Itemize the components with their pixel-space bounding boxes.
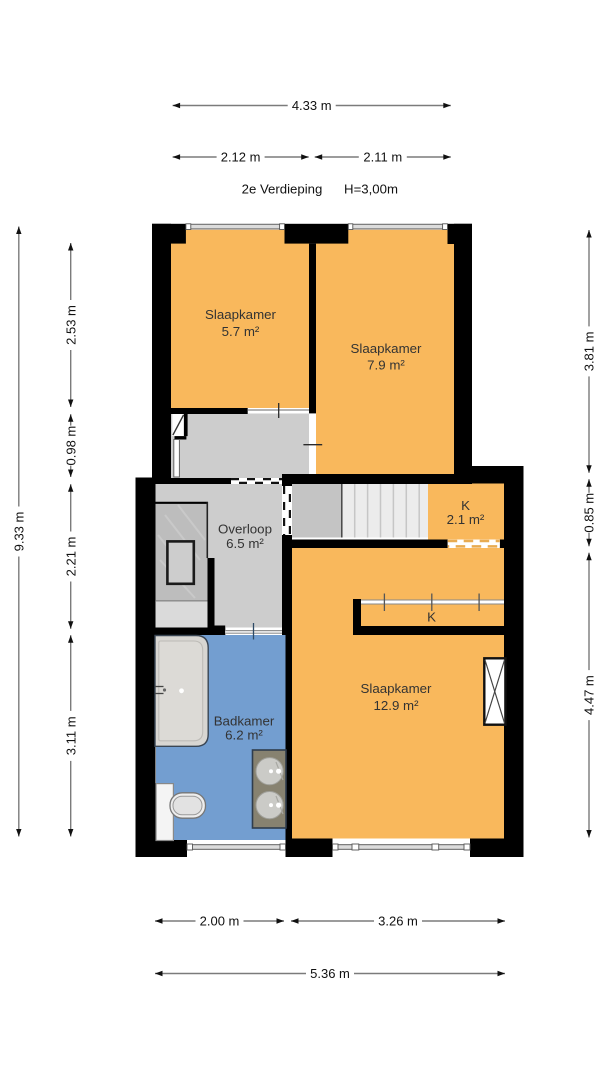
svg-text:5.36 m: 5.36 m [310, 966, 350, 981]
svg-text:Slaapkamer: Slaapkamer [361, 681, 433, 696]
svg-text:2.00 m: 2.00 m [200, 914, 240, 929]
svg-text:2.21 m: 2.21 m [63, 537, 78, 577]
svg-text:Slaapkamer: Slaapkamer [351, 341, 423, 356]
svg-text:2.12 m: 2.12 m [221, 150, 261, 165]
svg-text:3.81 m: 3.81 m [582, 332, 597, 372]
svg-text:7.9 m²: 7.9 m² [367, 358, 405, 373]
svg-text:K: K [427, 610, 436, 625]
svg-text:9.33 m: 9.33 m [11, 512, 26, 552]
svg-text:Overloop: Overloop [218, 522, 272, 537]
svg-text:6.5 m²: 6.5 m² [226, 536, 264, 551]
svg-text:4.33 m: 4.33 m [292, 98, 332, 113]
svg-text:H=3,00m: H=3,00m [344, 181, 398, 196]
svg-text:2.53 m: 2.53 m [63, 305, 78, 345]
svg-text:4.47 m: 4.47 m [582, 675, 597, 715]
svg-text:0.85 m: 0.85 m [582, 493, 597, 533]
svg-text:3.26 m: 3.26 m [378, 914, 418, 929]
svg-text:5.7 m²: 5.7 m² [222, 324, 260, 339]
svg-text:6.2 m²: 6.2 m² [225, 728, 263, 743]
svg-text:K: K [461, 498, 470, 513]
svg-text:3.11 m: 3.11 m [63, 716, 78, 755]
svg-text:2e Verdieping: 2e Verdieping [242, 181, 323, 196]
svg-text:0.98 m: 0.98 m [63, 426, 78, 466]
svg-text:2.11 m: 2.11 m [363, 150, 402, 165]
svg-text:2.1 m²: 2.1 m² [447, 512, 485, 527]
svg-text:Slaapkamer: Slaapkamer [205, 307, 277, 322]
svg-text:12.9 m²: 12.9 m² [373, 698, 419, 713]
svg-text:Badkamer: Badkamer [214, 714, 275, 729]
